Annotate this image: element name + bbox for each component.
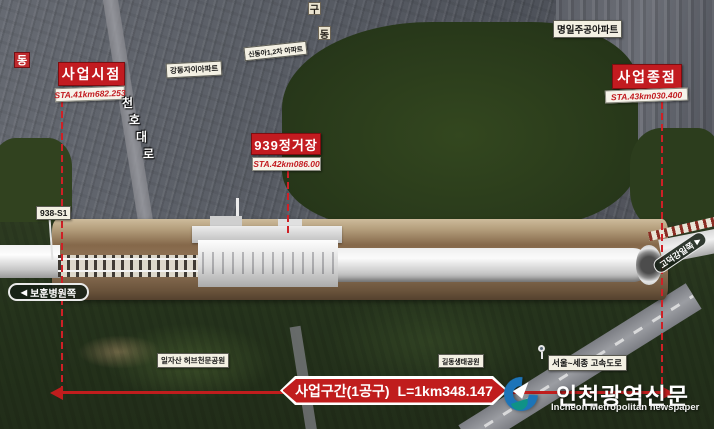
road-name-char: 로 [143,145,154,162]
start-boundary-line [61,100,63,390]
station-leader-line [287,171,289,237]
expressway-label: 서울~세종 고속도로 [548,355,627,371]
road-name-char: 천 [122,94,133,111]
direction-bohun-hospital: ◀ 보훈병원쪽 [8,283,89,301]
measure-arrow-left-icon [50,386,63,400]
aerial-construction-plan: 둔 촌 동 강 동 구 길 동 사업시점 STA.41km682.253 사업종… [0,0,714,429]
map-pin-stem [541,352,543,359]
myeongil-jugong-apartment-label: 명일주공아파트 [553,20,622,38]
section-banner-inner: 사업구간(1공구) L=1km348.147 [283,379,506,403]
station-939-sta: STA.42km086.00 [252,157,321,171]
district-char: 동 [318,26,331,40]
park-forest-topright [630,128,714,232]
road-name-char: 호 [129,111,140,128]
project-start-marker: 사업시점 [58,62,125,86]
district-char: 동 [14,52,30,68]
gangdong-xi-apartment-label: 강동자이아파트 [166,61,223,79]
section-length: L=1km348.147 [398,383,493,399]
shaft-938-label: 938-S1 [36,206,71,220]
cheonhodaero-road-name: 천 호 대 로 [118,94,158,170]
section-banner: 사업구간(1공구) L=1km348.147 [280,376,508,405]
gildong-eco-park-label: 길동생태공원 [438,354,484,368]
right-arrow-icon: ▶ [693,236,702,246]
road-name-char: 대 [136,128,147,145]
station-939-marker: 939정거장 [251,133,321,155]
station-windows [202,252,334,274]
iljasan-herb-park-label: 일자산 허브천문공원 [157,353,229,368]
park-forest-top [282,22,638,228]
left-arrow-icon: ◀ [21,288,27,297]
end-boundary-line [661,102,663,390]
direction-bohun-label: 보훈병원쪽 [30,285,76,300]
tunnel-tube-main [298,248,650,282]
map-pin-icon [538,345,545,352]
project-end-marker: 사업종점 [612,64,682,89]
project-start-sta: STA.41km682.253 [55,86,125,102]
district-char: 구 [308,2,321,15]
newspaper-subtitle: Incheon Metropolitan newspaper [551,402,699,413]
section-label: 사업구간(1공구) [295,381,389,401]
